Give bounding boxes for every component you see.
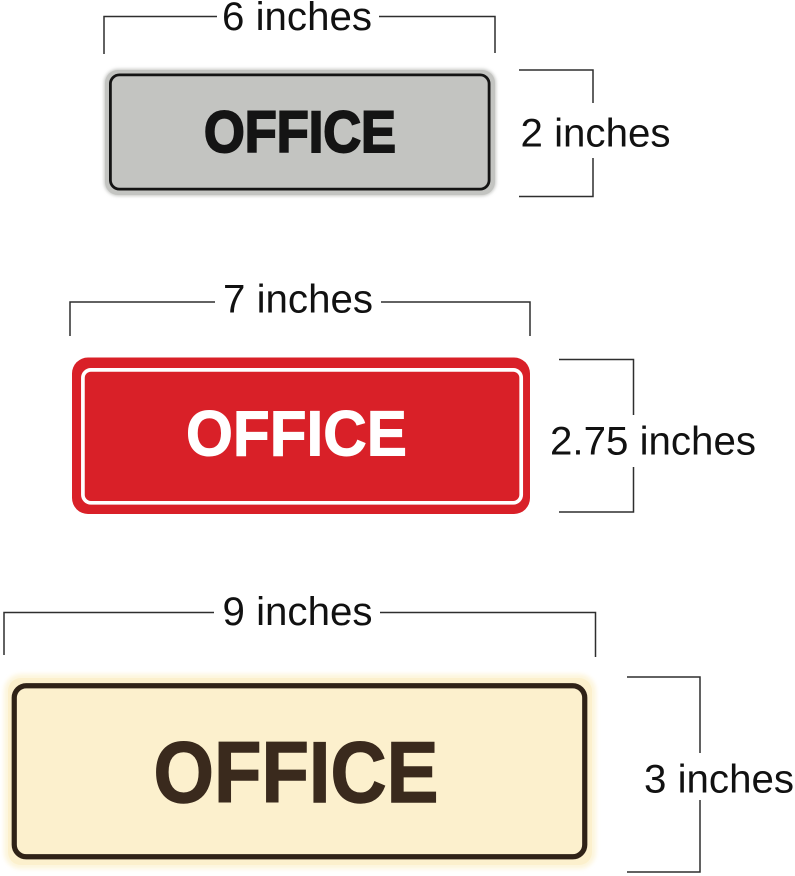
svg-text:7 inches: 7 inches	[223, 278, 373, 322]
svg-text:6 inches: 6 inches	[222, 0, 372, 39]
svg-text:OFFICE: OFFICE	[154, 725, 439, 821]
svg-text:2.75 inches: 2.75 inches	[550, 420, 756, 464]
svg-text:OFFICE: OFFICE	[186, 397, 407, 469]
svg-text:9 inches: 9 inches	[223, 590, 373, 634]
svg-text:3 inches: 3 inches	[644, 758, 794, 802]
svg-text:2 inches: 2 inches	[521, 112, 671, 156]
svg-text:OFFICE: OFFICE	[204, 100, 396, 165]
